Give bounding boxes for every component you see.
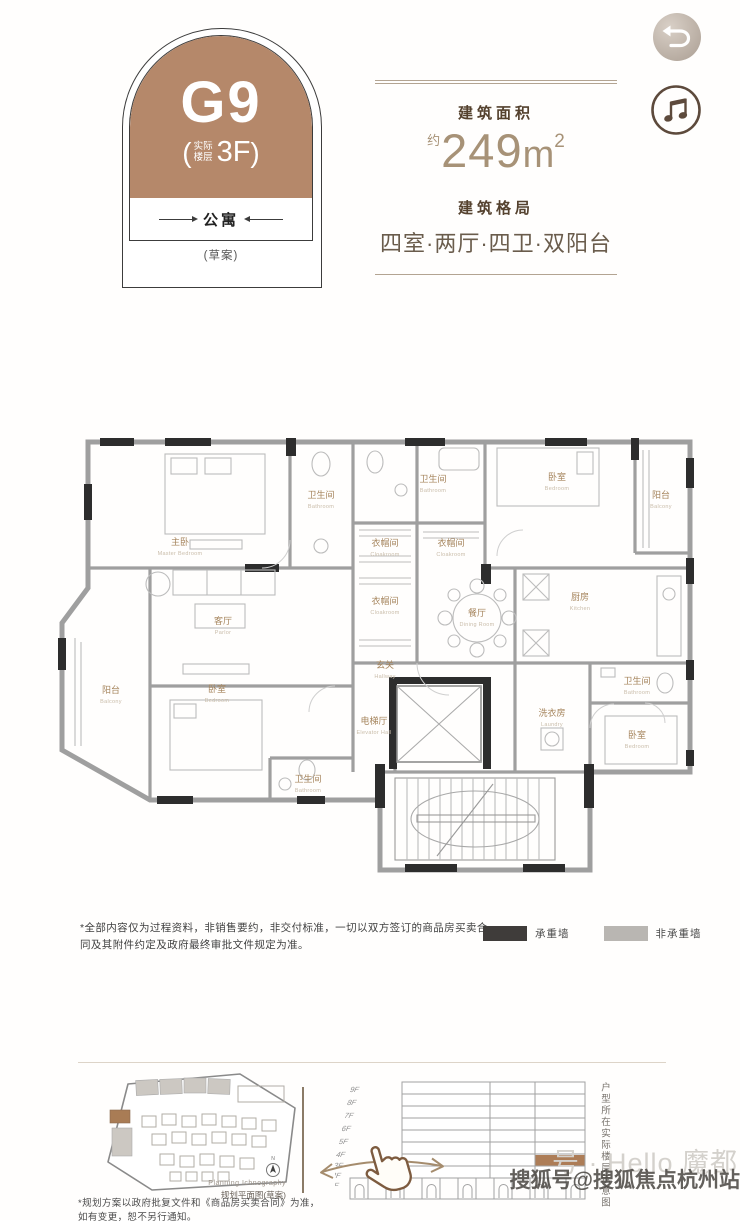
- legend-bearing-swatch: [483, 926, 527, 941]
- svg-text:N: N: [271, 1156, 275, 1162]
- svg-text:Kitchen: Kitchen: [570, 606, 590, 612]
- room-labels: 主卧 Master Bedroom 卫生间 Bathroom 卫生间 Bathr…: [100, 471, 672, 794]
- svg-text:Cloakroom: Cloakroom: [370, 610, 399, 616]
- paren-close: ): [250, 139, 259, 167]
- svg-text:Dining Room: Dining Room: [459, 622, 494, 628]
- room-label: 卫生间: [307, 489, 334, 500]
- room-label: 衣帽间: [371, 595, 398, 606]
- svg-text:Bathroom: Bathroom: [420, 488, 446, 494]
- area-value: 249: [441, 124, 522, 177]
- svg-text:Bathroom: Bathroom: [308, 504, 334, 510]
- room-label: 卫生间: [419, 473, 446, 484]
- svg-text:Bathroom: Bathroom: [295, 788, 321, 794]
- unit-badge: G9 ( 实际 楼层 3F ) 公寓 (草案): [122, 28, 322, 288]
- divider: [302, 1087, 304, 1193]
- door-arcs: [262, 530, 665, 728]
- back-button[interactable]: [652, 12, 702, 62]
- svg-text:6F: 6F: [341, 1124, 352, 1133]
- svg-text:Bathroom: Bathroom: [624, 690, 650, 696]
- room-label: 玄关: [376, 659, 394, 670]
- room-label: 阳台: [652, 489, 670, 500]
- paren-open: (: [182, 139, 191, 167]
- area-title: 建筑面积: [375, 102, 617, 123]
- floor-row: ( 实际 楼层 3F ): [130, 138, 312, 167]
- room-label: 卫生间: [623, 675, 650, 686]
- wall-legend: 承重墙 非承重墙: [483, 926, 736, 941]
- room-label: 衣帽间: [371, 537, 398, 548]
- room-label: 阳台: [102, 684, 120, 695]
- category-label: 公寓: [203, 209, 239, 230]
- area-approx: 约: [427, 133, 440, 148]
- layout-title: 建筑格局: [375, 197, 617, 218]
- area-unit: m: [523, 134, 555, 176]
- layout-value: 四室·两厅·四卫·双阳台: [375, 226, 617, 258]
- divider: [375, 80, 617, 81]
- unit-number: G9: [130, 74, 312, 132]
- music-note-icon: [650, 84, 702, 136]
- floor-value: 3F: [217, 138, 251, 167]
- room-label: 卧室: [628, 729, 646, 740]
- area-value-row: 约249m2: [375, 125, 617, 177]
- svg-text:Balcony: Balcony: [650, 504, 672, 510]
- svg-text:Cloakroom: Cloakroom: [370, 552, 399, 558]
- legend-non-bearing-swatch: [604, 926, 648, 941]
- svg-text:Master Bedroom: Master Bedroom: [158, 551, 203, 557]
- room-label: 洗衣房: [538, 707, 565, 718]
- svg-text:8F: 8F: [346, 1098, 357, 1107]
- page: G9 ( 实际 楼层 3F ) 公寓 (草案) 建筑: [0, 0, 740, 1220]
- room-label: 卫生间: [294, 773, 321, 784]
- divider: [375, 274, 617, 275]
- area-sup: 2: [554, 131, 565, 152]
- site-plan-highlight: [110, 1110, 130, 1123]
- site-plan: N: [90, 1070, 315, 1195]
- site-plan-note: *规划方案以政府批复文件和《商品房买卖合同》为准， 如有变更，恕不另行通知。: [78, 1197, 320, 1225]
- svg-text:7F: 7F: [344, 1111, 355, 1120]
- divider: [375, 83, 617, 84]
- legend-non-bearing-label: 非承重墙: [656, 926, 702, 941]
- room-label: 衣帽间: [437, 537, 464, 548]
- room-label: 餐厅: [468, 607, 486, 618]
- swipe-hand-pointer-icon: [360, 1142, 413, 1197]
- svg-text:Bedroom: Bedroom: [205, 698, 230, 704]
- arrow-line-right: [249, 219, 283, 220]
- room-label: 卧室: [548, 471, 566, 482]
- divider: [78, 1062, 666, 1063]
- undo-return-arrow-icon: [652, 12, 702, 62]
- room-label: 主卧: [171, 536, 189, 547]
- category-row: 公寓: [130, 198, 312, 240]
- draft-label: (草案): [123, 247, 319, 263]
- svg-text:9F: 9F: [349, 1085, 360, 1094]
- svg-text:Bedroom: Bedroom: [545, 486, 570, 492]
- unit-badge-inner: G9 ( 实际 楼层 3F ) 公寓: [129, 35, 313, 241]
- svg-text:Parlor: Parlor: [215, 630, 231, 636]
- svg-text:Bedroom: Bedroom: [625, 744, 650, 750]
- music-button[interactable]: [650, 84, 702, 136]
- svg-text:Balcony: Balcony: [100, 699, 122, 705]
- unit-badge-arch: G9 ( 实际 楼层 3F ): [130, 36, 312, 198]
- svg-text:Cloakroom: Cloakroom: [436, 552, 465, 558]
- room-label: 厨房: [571, 591, 589, 602]
- swipe-hint-area[interactable]: [308, 1142, 458, 1220]
- room-label: 卧室: [208, 683, 226, 694]
- watermark-dark: 搜狐号@搜狐焦点杭州站: [510, 1164, 740, 1194]
- disclaimer-text: *全部内容仅为过程资料，非销售要约，非交付标准，一切以双方签订的商品房买卖合同及…: [80, 920, 492, 954]
- floor-note: 实际 楼层: [194, 142, 213, 164]
- room-label: 电梯厅: [360, 715, 387, 726]
- svg-text:Hallway: Hallway: [374, 674, 395, 680]
- svg-text:Elevator Hall: Elevator Hall: [356, 730, 391, 736]
- arrow-line-left: [159, 219, 193, 220]
- room-label: 客厅: [214, 615, 232, 626]
- legend-bearing-label: 承重墙: [535, 926, 570, 941]
- floor-plan: 主卧 Master Bedroom 卫生间 Bathroom 卫生间 Bathr…: [45, 428, 695, 883]
- svg-text:Laundry: Laundry: [541, 722, 563, 728]
- unit-info-panel: 建筑面积 约249m2 建筑格局 四室·两厅·四卫·双阳台: [375, 80, 617, 275]
- site-plan-caption-en: Planning Ichnography: [190, 1180, 286, 1187]
